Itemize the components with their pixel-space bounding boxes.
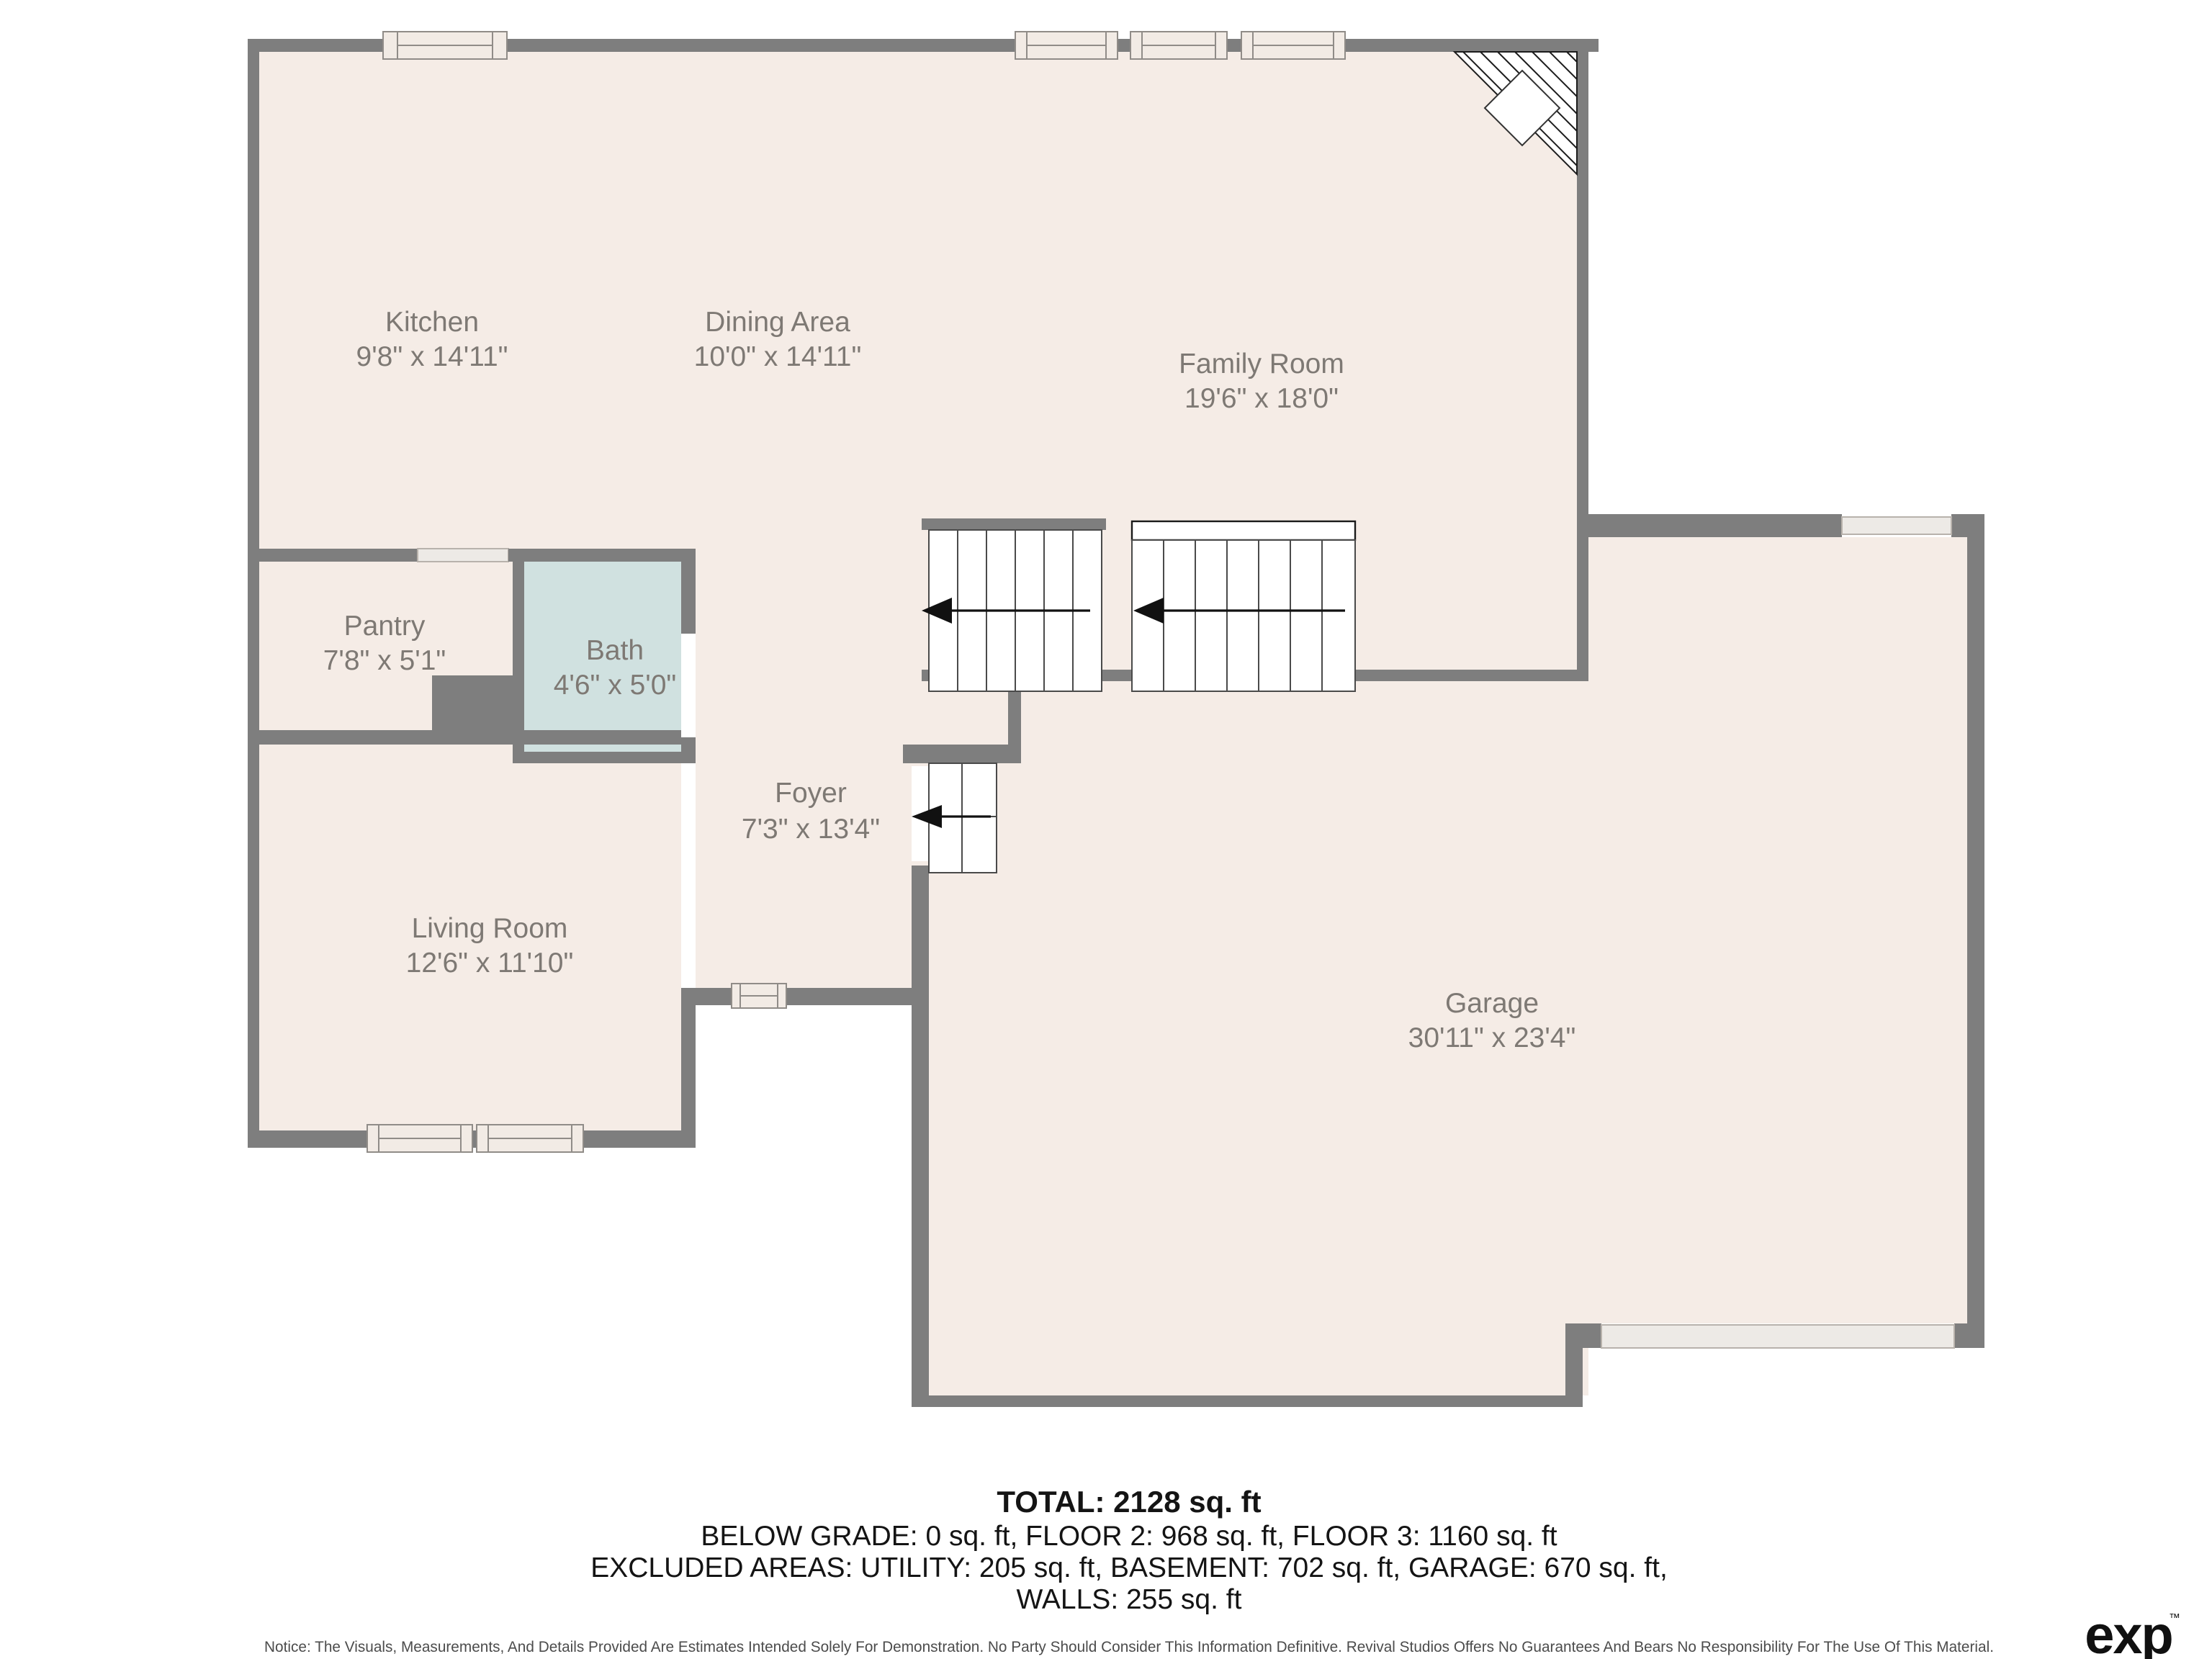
disclaimer-notice: Notice: The Visuals, Measurements, And D… — [264, 1639, 1994, 1655]
exp-realty-logo: exp ™ REALTY — [2080, 1605, 2180, 1659]
garage-rear-door-opening — [1842, 517, 1951, 534]
exp-logo-text: exp — [2085, 1605, 2172, 1659]
svg-text:30'11" x 23'4": 30'11" x 23'4" — [1408, 1022, 1576, 1053]
svg-text:7'8" x 5'1": 7'8" x 5'1" — [323, 645, 446, 676]
floors-area-text: BELOW GRADE: 0 sq. ft, FLOOR 2: 968 sq. … — [701, 1521, 1557, 1552]
svg-text:12'6" x 11'10": 12'6" x 11'10" — [406, 948, 574, 979]
svg-text:Garage: Garage — [1445, 988, 1539, 1019]
svg-text:Kitchen: Kitchen — [385, 307, 479, 338]
svg-text:Pantry: Pantry — [344, 611, 426, 642]
svg-text:Dining Area: Dining Area — [705, 307, 850, 338]
walls-area-text: WALLS: 255 sq. ft — [1017, 1584, 1242, 1615]
pantry-door-opening — [418, 549, 508, 562]
entry-step-icon — [912, 763, 997, 873]
window-icon — [1241, 32, 1345, 59]
svg-text:Bath: Bath — [586, 635, 644, 666]
window-icon — [367, 1125, 472, 1152]
window-icon — [732, 984, 786, 1008]
window-icon — [1130, 32, 1227, 59]
svg-text:Family Room: Family Room — [1179, 349, 1344, 379]
bath-door-opening — [681, 634, 696, 737]
window-icon — [477, 1125, 583, 1152]
floor-plan: Kitchen 9'8" x 14'11" Dining Area 10'0" … — [0, 0, 2212, 1659]
floor-plan-page: Kitchen 9'8" x 14'11" Dining Area 10'0" … — [0, 0, 2212, 1659]
garage-door-band — [1601, 1325, 1954, 1348]
svg-text:Living Room: Living Room — [412, 913, 568, 944]
svg-text:10'0" x 14'11": 10'0" x 14'11" — [694, 341, 862, 372]
window-icon — [1015, 32, 1118, 59]
staircase-icon — [922, 521, 1355, 691]
svg-text:19'6" x 18'0": 19'6" x 18'0" — [1184, 383, 1339, 414]
svg-text:Foyer: Foyer — [775, 778, 847, 809]
exp-logo-tm: ™ — [2169, 1612, 2180, 1624]
svg-text:7'3" x 13'4": 7'3" x 13'4" — [742, 814, 880, 845]
excluded-area-text: EXCLUDED AREAS: UTILITY: 205 sq. ft, BAS… — [590, 1552, 1668, 1583]
area-summary: TOTAL: 2128 sq. ft BELOW GRADE: 0 sq. ft… — [590, 1485, 1668, 1615]
total-area-text: TOTAL: 2128 sq. ft — [997, 1485, 1261, 1519]
svg-text:4'6" x 5'0": 4'6" x 5'0" — [554, 670, 677, 701]
svg-text:9'8" x 14'11": 9'8" x 14'11" — [356, 341, 508, 372]
window-icon — [383, 32, 507, 59]
